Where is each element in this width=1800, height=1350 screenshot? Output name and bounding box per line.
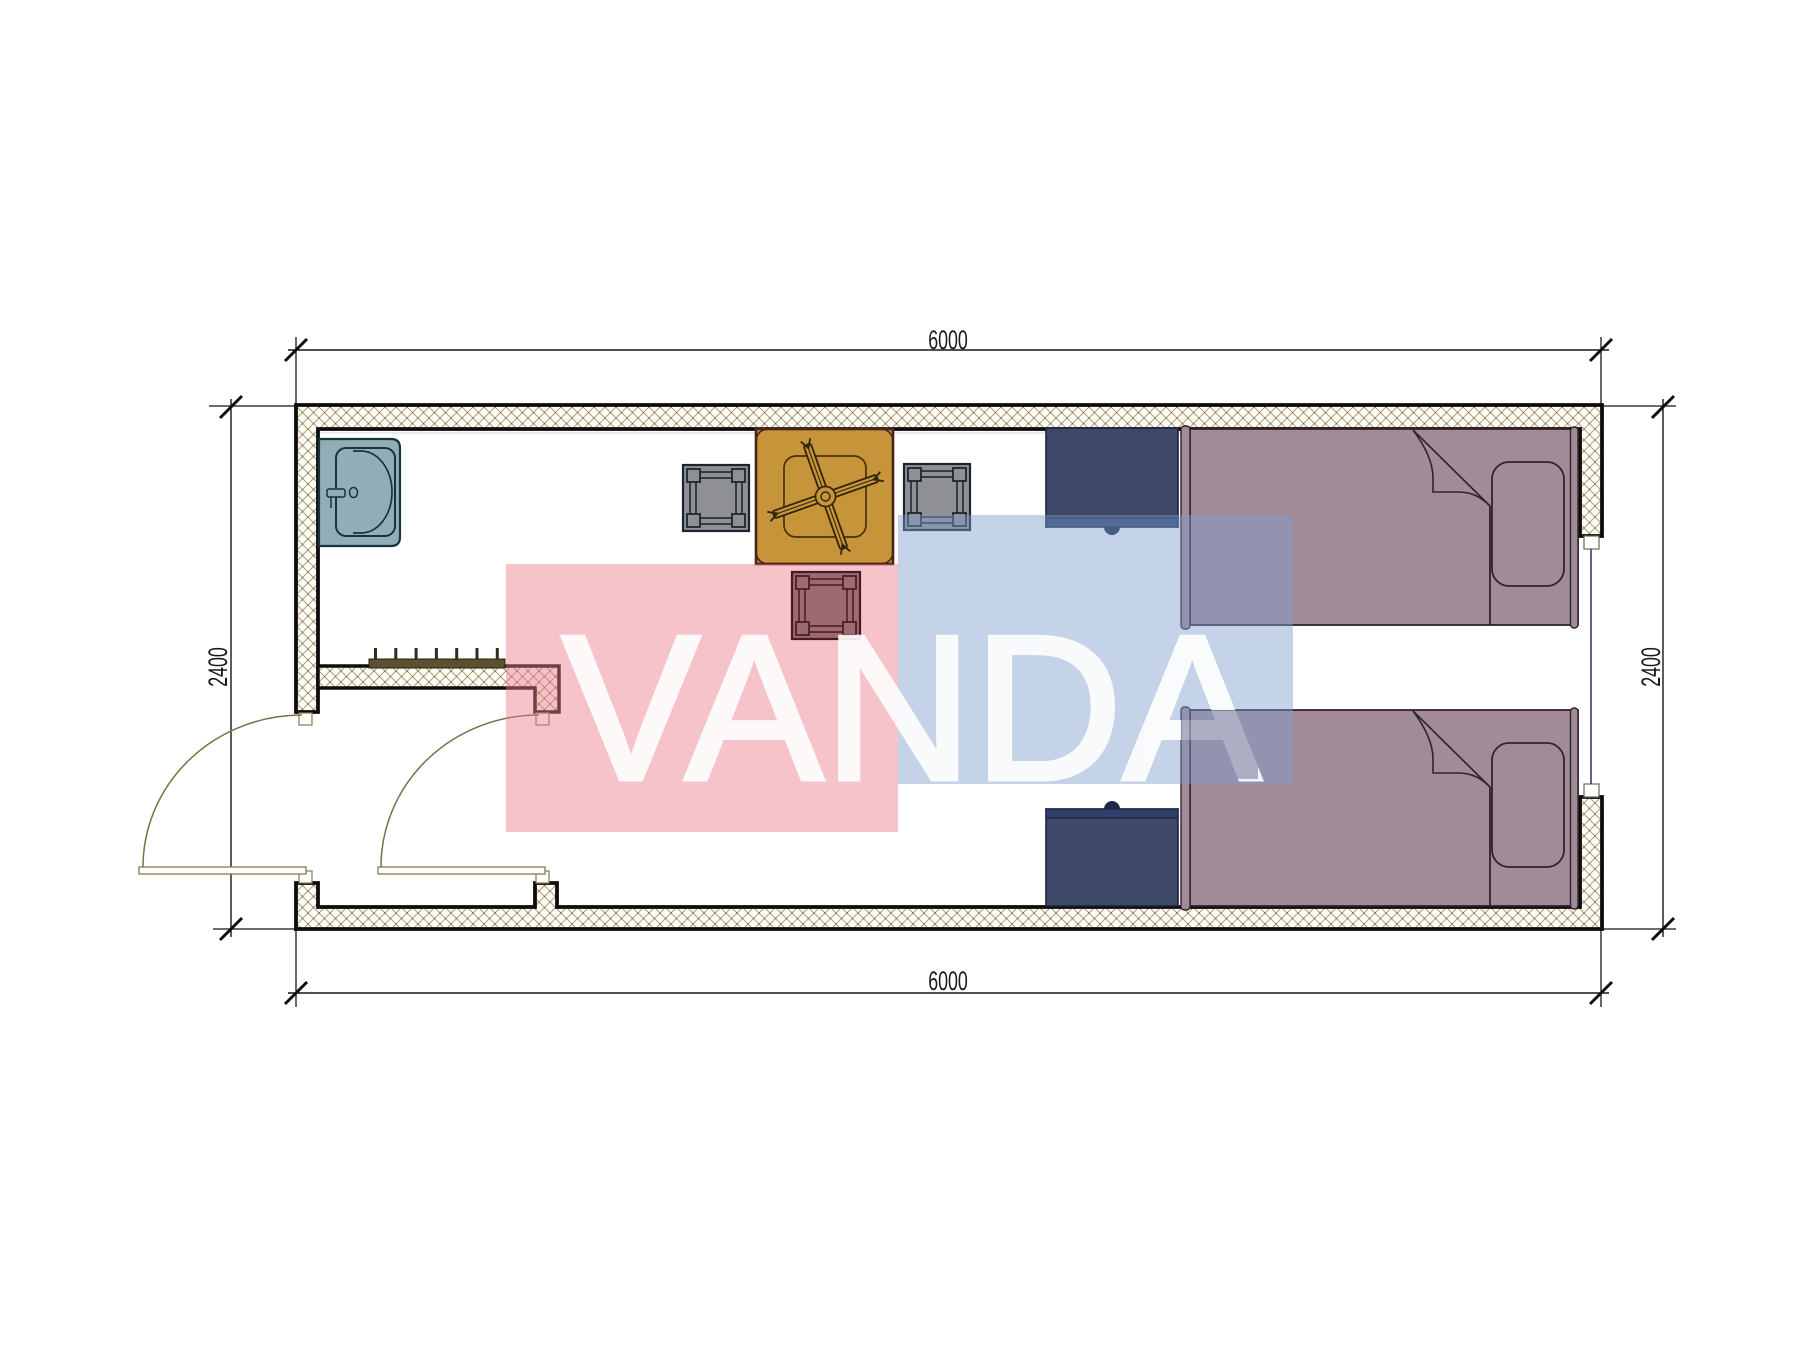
svg-text:VANDA: VANDA	[562, 593, 1261, 823]
svg-text:2400: 2400	[1635, 647, 1666, 687]
svg-text:6000: 6000	[928, 324, 968, 355]
svg-text:6000: 6000	[928, 965, 968, 996]
svg-text:2400: 2400	[202, 647, 233, 687]
